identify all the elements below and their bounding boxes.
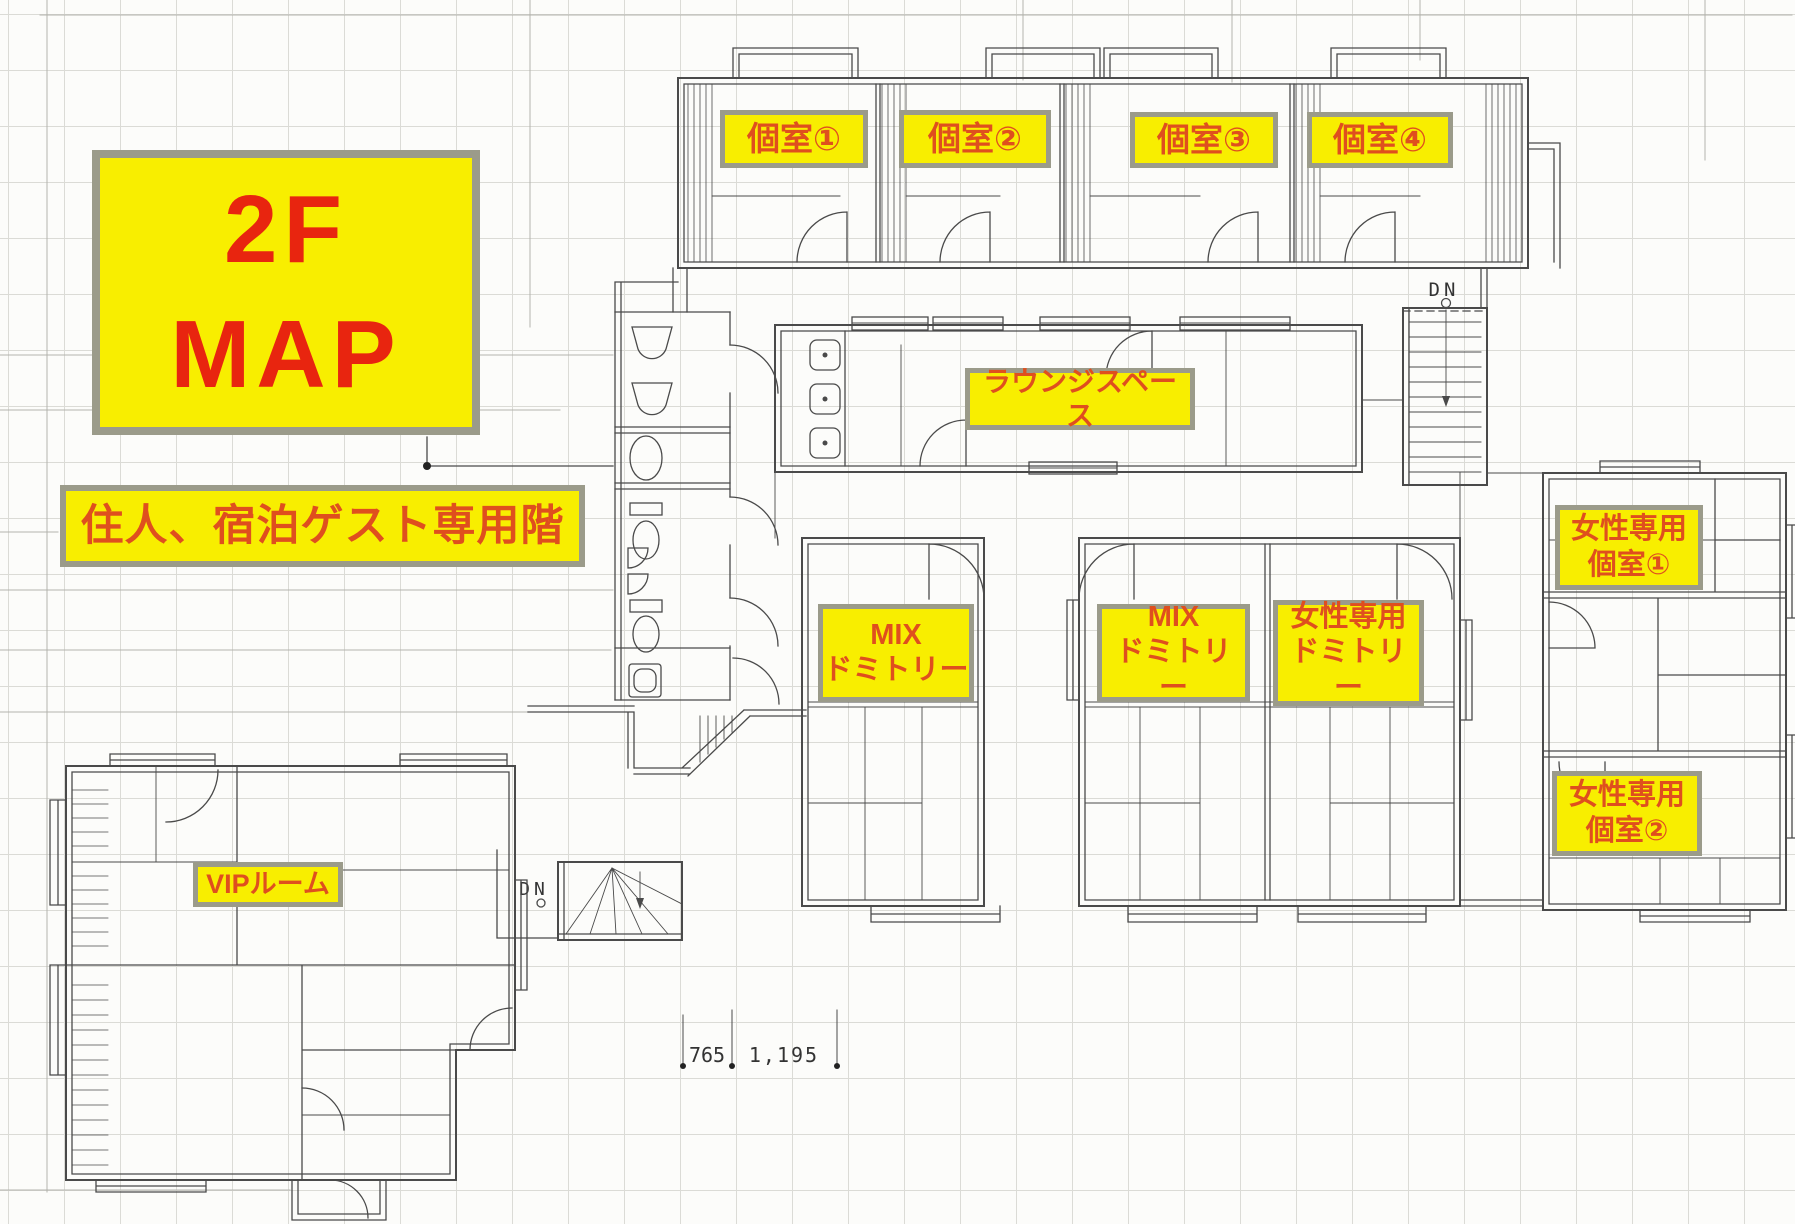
angled-stair-treads xyxy=(700,716,732,762)
stairs-top-right: DN xyxy=(1403,268,1487,485)
room-label-womens-private-1: 女性専用 個室① xyxy=(1555,505,1703,590)
room-label-vip: VIPルーム xyxy=(193,862,343,907)
toilet-3 xyxy=(633,616,659,652)
dimension-1195: 1,195 xyxy=(749,1043,819,1067)
vip-bed-hatching xyxy=(72,790,108,1165)
lounge-window xyxy=(1040,317,1130,330)
lounge-window xyxy=(933,317,1003,330)
dorm-a-beds xyxy=(808,702,978,900)
room-label-private-1: 個室① xyxy=(720,110,868,168)
fan-stair-arrow xyxy=(636,898,644,909)
washrooms xyxy=(615,268,779,704)
stair-start-dot xyxy=(537,899,545,907)
dorm-block-b xyxy=(1067,538,1472,922)
vip-doors xyxy=(166,770,512,1218)
dorm-a-bay xyxy=(871,906,1000,922)
room-label-private-3: 個室③ xyxy=(1130,112,1278,168)
toilet-2-tank xyxy=(630,503,662,515)
room-label-mix-dorm-b: MIX ドミトリー xyxy=(1097,604,1250,702)
toilet-1 xyxy=(630,436,662,480)
room-label-lounge: ラウンジスペース xyxy=(965,368,1195,430)
room-doors xyxy=(797,212,1395,262)
stairs-down-label-1: DN xyxy=(1429,279,1460,301)
toilet-2 xyxy=(633,521,659,559)
dimension-marks: 765 1,195 xyxy=(680,1010,840,1069)
lounge-window xyxy=(852,317,928,330)
lounge-window xyxy=(1180,317,1290,330)
toilet-3-tank xyxy=(630,600,662,612)
dorm-block-a xyxy=(802,538,1000,922)
fan-stair-treads xyxy=(566,868,682,934)
floor-title-label: 2F MAP xyxy=(92,150,480,435)
floor-note-label: 住人、宿泊ゲスト専用階 xyxy=(60,485,585,567)
corridor-and-lower-stairs: DN xyxy=(497,706,806,940)
dimension-765: 765 xyxy=(689,1043,725,1067)
floor-plan-page: DN xyxy=(0,0,1795,1224)
washer-drum xyxy=(634,669,656,692)
vip-entry-porch xyxy=(292,1180,386,1220)
room-label-private-2: 個室② xyxy=(899,110,1051,168)
room-label-womens-dorm: 女性専用 ドミトリー xyxy=(1273,600,1424,706)
vip-block xyxy=(50,754,527,1220)
stairs-down-label-2: DN xyxy=(519,879,549,900)
dorm-a-door xyxy=(929,544,984,599)
washroom-doors xyxy=(730,345,779,704)
room-label-mix-dorm-a: MIX ドミトリー xyxy=(818,604,974,702)
leader-dot xyxy=(423,462,431,470)
leader-line xyxy=(423,437,613,470)
wash-basins xyxy=(632,327,672,415)
room-label-womens-private-2: 女性専用 個室② xyxy=(1552,771,1702,856)
stair-direction-arrow xyxy=(1442,396,1450,407)
room-label-private-4: 個室④ xyxy=(1307,112,1453,168)
